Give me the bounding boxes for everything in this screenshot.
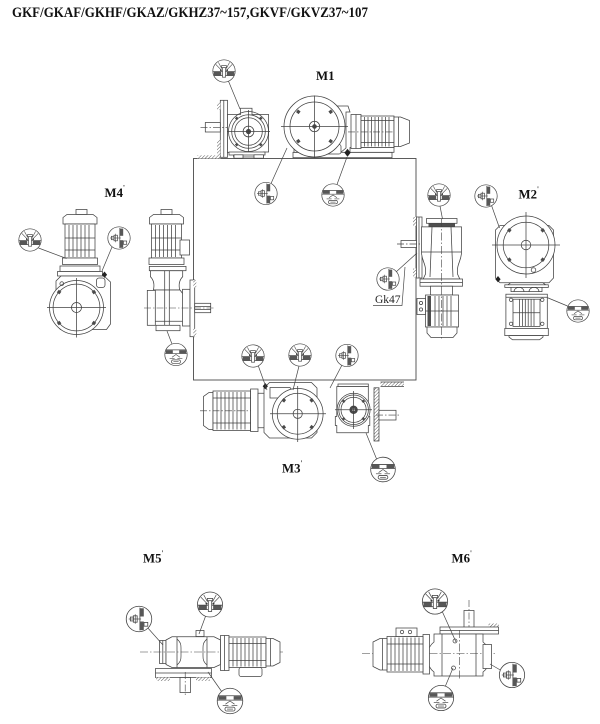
svg-text:GKF/GKAF/GKHF/GKAZ/GKHZ37~157,: GKF/GKAF/GKHF/GKAZ/GKHZ37~157,GKVF/GKVZ3… xyxy=(12,5,368,21)
svg-text:M1: M1 xyxy=(316,69,334,83)
svg-text:M2': M2' xyxy=(519,186,539,202)
svg-text:Gk47: Gk47 xyxy=(375,294,401,306)
svg-text:M4': M4' xyxy=(105,184,125,200)
svg-text:M5': M5' xyxy=(143,550,163,566)
svg-text:M6': M6' xyxy=(452,550,472,566)
svg-text:M3': M3' xyxy=(282,460,302,476)
